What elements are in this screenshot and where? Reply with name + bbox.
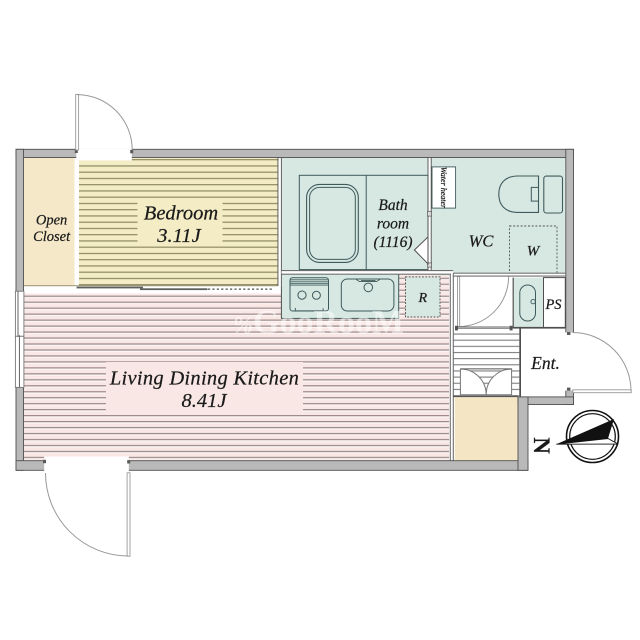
svg-text:Open: Open [36,212,67,228]
svg-text:GooRooM: GooRooM [253,304,404,341]
svg-text:W: W [527,244,541,260]
svg-text:PS: PS [544,297,562,313]
svg-text:%: % [233,313,253,339]
svg-text:3.11J: 3.11J [156,225,201,247]
svg-text:R: R [418,291,428,306]
svg-text:Water heater: Water heater [439,167,448,209]
svg-text:Bedroom: Bedroom [144,203,218,225]
svg-text:Living Dining Kitchen: Living Dining Kitchen [109,367,299,389]
svg-text:(1116): (1116) [373,234,412,251]
svg-text:N: N [529,437,554,454]
svg-text:Ent.: Ent. [530,353,560,373]
svg-text:WC: WC [469,232,495,251]
svg-text:8.41J: 8.41J [182,390,228,412]
svg-text:room: room [377,216,409,233]
svg-text:Closet: Closet [33,229,71,245]
svg-text:Bath: Bath [378,197,408,214]
